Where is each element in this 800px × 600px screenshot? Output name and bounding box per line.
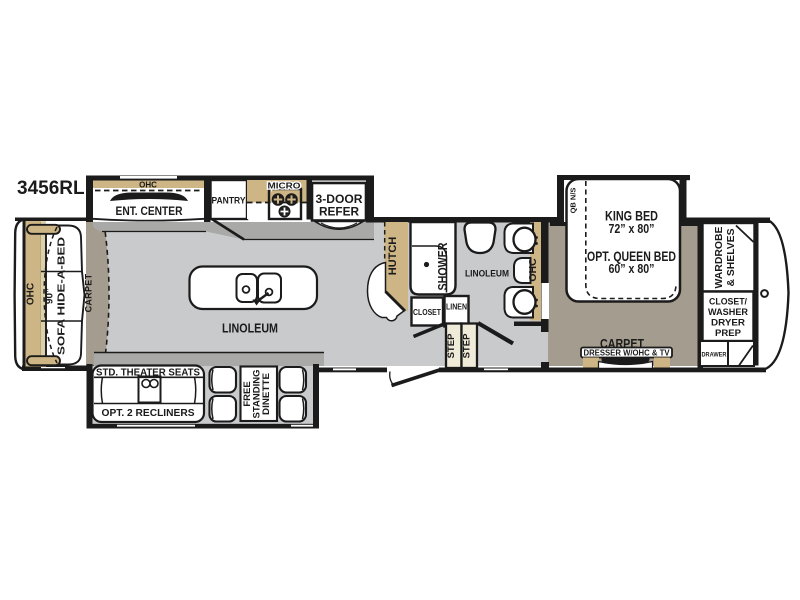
svg-text:CLOSET: CLOSET bbox=[413, 308, 441, 317]
svg-text:CLOSET/: CLOSET/ bbox=[709, 297, 747, 308]
svg-text:DRESSER W/OHC & TV: DRESSER W/OHC & TV bbox=[584, 348, 670, 358]
svg-text:STD. THEATER SEATS: STD. THEATER SEATS bbox=[96, 367, 200, 379]
svg-text:STEP: STEP bbox=[462, 333, 473, 358]
svg-text:DRYER: DRYER bbox=[711, 318, 745, 329]
svg-text:ENT. CENTER: ENT. CENTER bbox=[116, 204, 183, 218]
svg-text:OHC: OHC bbox=[26, 283, 37, 305]
svg-text:SOFA HIDE-A-BED: SOFA HIDE-A-BED bbox=[57, 237, 68, 355]
svg-text:OPT. 2 RECLINERS: OPT. 2 RECLINERS bbox=[102, 407, 195, 419]
svg-text:HUTCH: HUTCH bbox=[387, 237, 399, 276]
svg-text:90”: 90” bbox=[45, 288, 56, 304]
svg-text:LINOLEUM: LINOLEUM bbox=[222, 322, 278, 336]
svg-text:MICRO: MICRO bbox=[268, 181, 301, 191]
svg-text:QB N/S: QB N/S bbox=[569, 188, 578, 214]
svg-text:& SHELVES: & SHELVES bbox=[725, 229, 737, 287]
svg-text:REFER: REFER bbox=[319, 207, 360, 219]
svg-text:PREP: PREP bbox=[715, 328, 742, 339]
svg-text:WASHER: WASHER bbox=[708, 307, 748, 318]
svg-text:72” x 80”: 72” x 80” bbox=[609, 222, 655, 236]
svg-text:3-DOOR: 3-DOOR bbox=[316, 194, 364, 206]
svg-text:LINOLEUM: LINOLEUM bbox=[465, 269, 509, 280]
svg-text:STEP: STEP bbox=[446, 333, 457, 358]
svg-text:WARDROBE: WARDROBE bbox=[713, 227, 725, 289]
svg-text:DINETTE: DINETTE bbox=[261, 373, 272, 415]
svg-text:60” x 80”: 60” x 80” bbox=[609, 262, 655, 276]
svg-text:OHC: OHC bbox=[139, 181, 157, 190]
svg-text:PANTRY: PANTRY bbox=[212, 196, 247, 207]
svg-text:OHC: OHC bbox=[527, 258, 539, 282]
svg-text:LINEN: LINEN bbox=[446, 303, 467, 312]
svg-text:SHOWER: SHOWER bbox=[435, 242, 450, 291]
svg-text:3456RL: 3456RL bbox=[17, 178, 85, 199]
svg-text:DRAWER: DRAWER bbox=[702, 352, 727, 359]
